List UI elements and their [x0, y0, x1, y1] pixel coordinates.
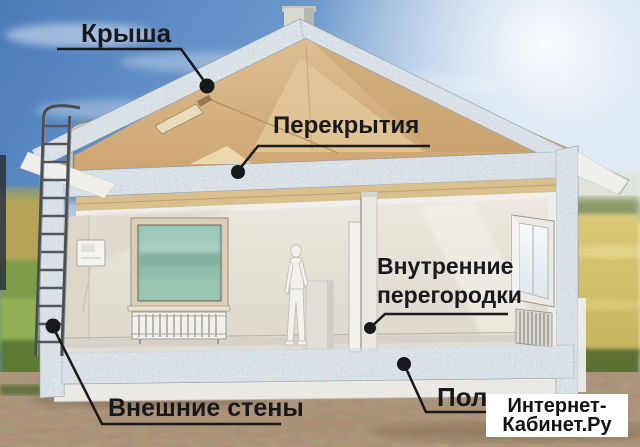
label-partitions-line1: Внутренние: [377, 252, 522, 281]
house-cross-section-diagram: Крыша Перекрытия Внутренние перегородки …: [0, 0, 640, 447]
watermark-line2: Кабинет.Ру: [486, 416, 628, 435]
radiator-left: [132, 312, 226, 344]
label-floor: Пол: [437, 384, 487, 411]
label-ceilings: Перекрытия: [273, 113, 419, 138]
window-sill: [128, 306, 230, 311]
window-left: [128, 218, 230, 311]
illustration-canvas: [0, 0, 640, 447]
corner-trim-right: [578, 298, 586, 392]
label-roof: Крыша: [81, 20, 171, 47]
watermark-badge: Интернет- Кабинет.Ру: [486, 394, 628, 437]
pedestal: [306, 281, 333, 349]
label-partitions-line2: перегородки: [377, 281, 522, 310]
label-exterior-walls: Внешние стены: [108, 395, 304, 421]
label-partitions: Внутренние перегородки: [377, 252, 522, 310]
background-pole: [0, 155, 6, 290]
radiator-right: [516, 309, 552, 347]
